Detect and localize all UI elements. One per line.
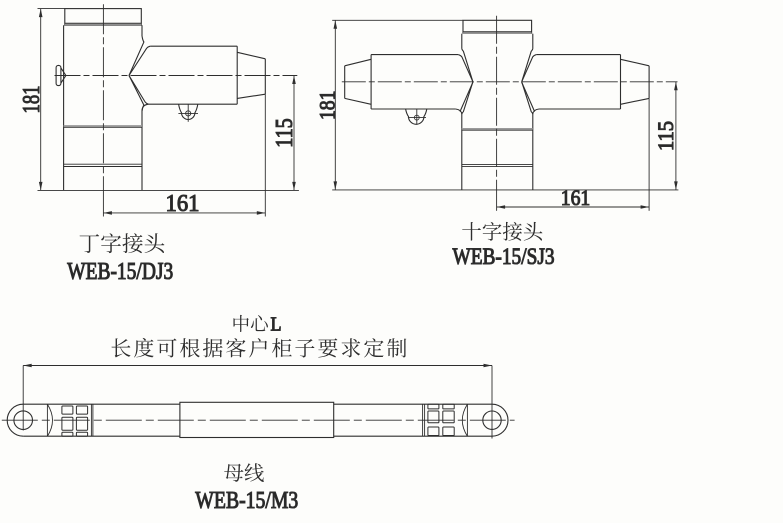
svg-text:115: 115 xyxy=(272,118,298,148)
svg-text:181: 181 xyxy=(315,91,340,121)
svg-text:WEB-15/DJ3: WEB-15/DJ3 xyxy=(67,259,173,285)
svg-text:L: L xyxy=(271,314,282,336)
svg-text:161: 161 xyxy=(561,185,591,210)
svg-text:WEB-15/SJ3: WEB-15/SJ3 xyxy=(453,244,555,269)
svg-text:161: 161 xyxy=(166,191,200,217)
svg-text:WEB-15/M3: WEB-15/M3 xyxy=(195,488,298,514)
svg-text:181: 181 xyxy=(19,86,45,114)
svg-text:115: 115 xyxy=(653,121,678,151)
